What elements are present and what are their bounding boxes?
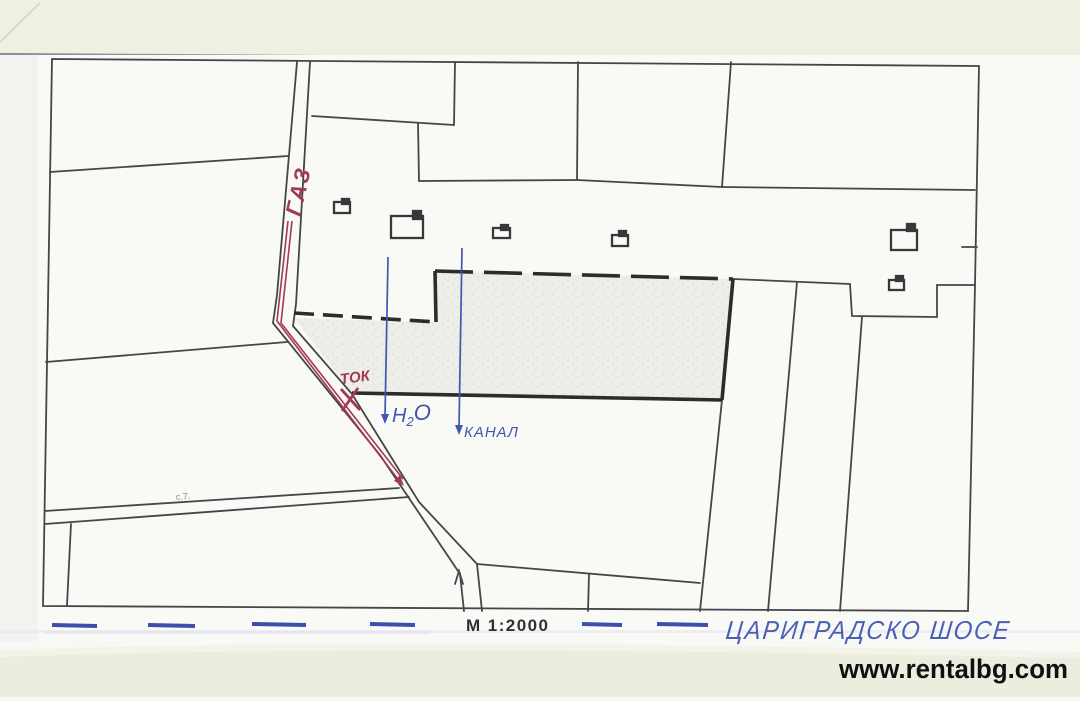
svg-text:www.rentalbg.com: www.rentalbg.com — [838, 654, 1068, 684]
svg-text:ЦАРИГРАДСКО ШОСЕ: ЦАРИГРАДСКО ШОСЕ — [724, 615, 1012, 645]
svg-text:КАНАЛ: КАНАЛ — [464, 424, 519, 441]
svg-text:с.7.: с.7. — [175, 491, 190, 502]
svg-text:М 1:2000: М 1:2000 — [466, 616, 548, 635]
